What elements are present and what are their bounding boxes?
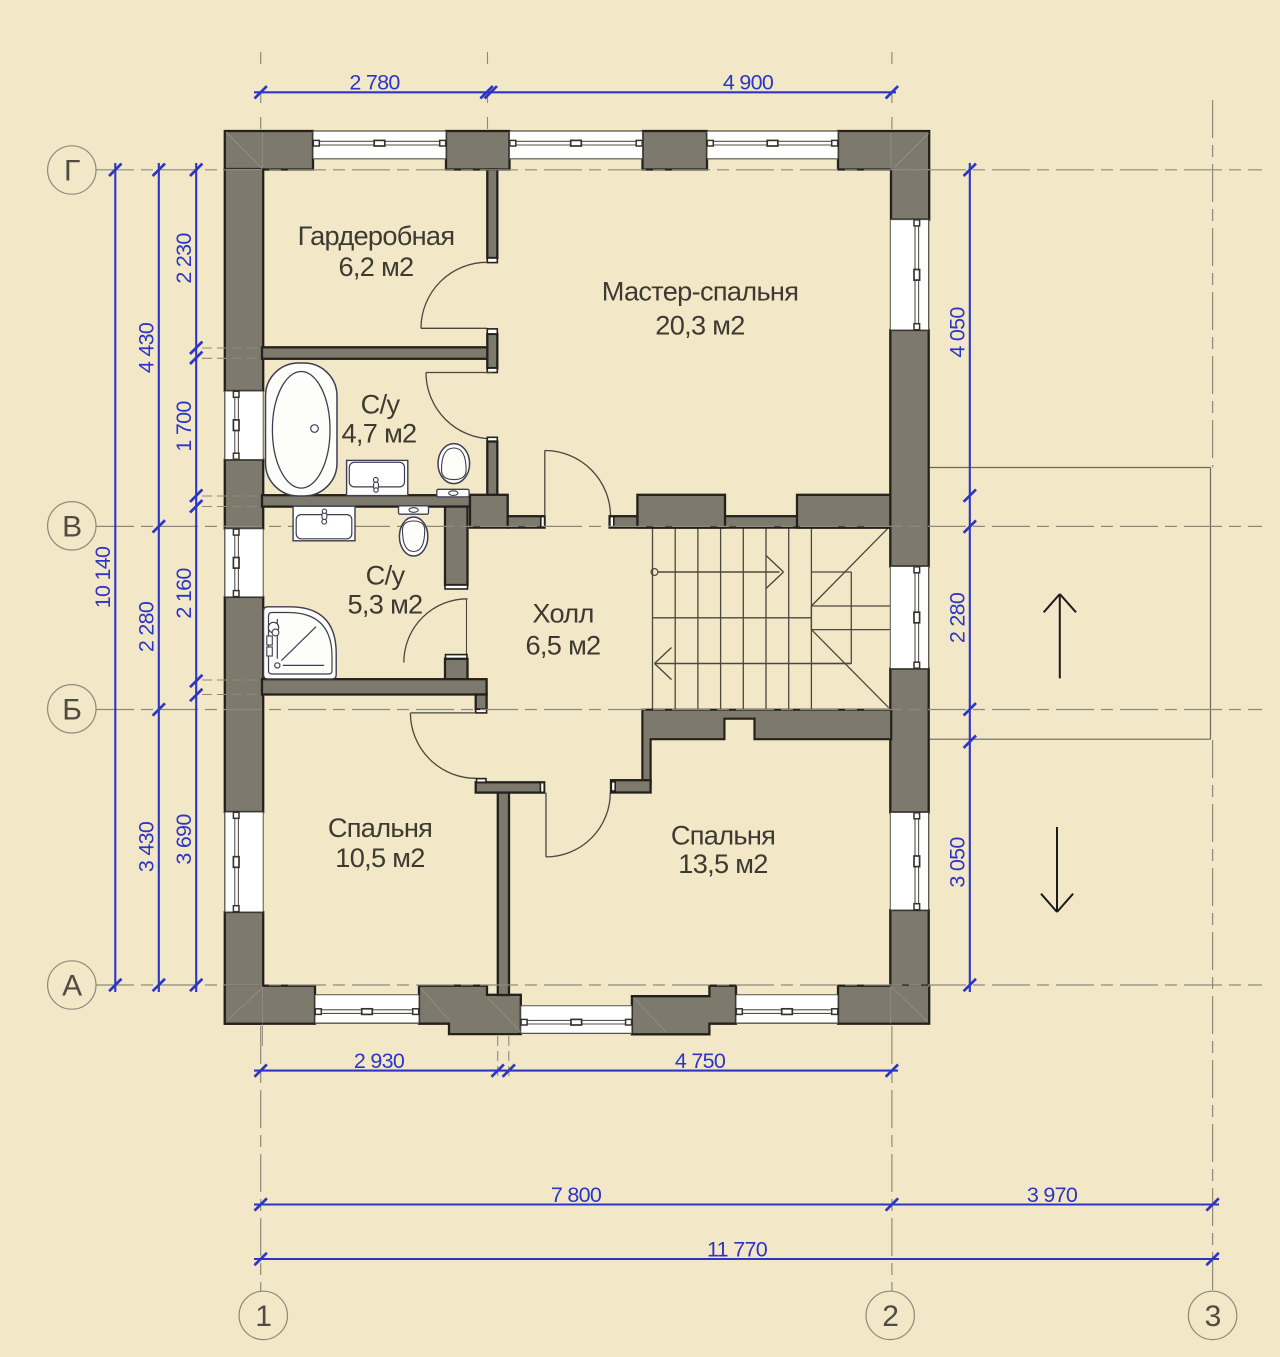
svg-text:С/у: С/у <box>361 389 401 420</box>
svg-text:Г: Г <box>64 155 80 188</box>
svg-text:В: В <box>62 510 81 543</box>
svg-text:2: 2 <box>882 1300 898 1333</box>
svg-text:20,3 м2: 20,3 м2 <box>655 310 744 341</box>
svg-text:С/у: С/у <box>366 560 406 591</box>
svg-text:2 160: 2 160 <box>172 568 196 619</box>
svg-text:4 050: 4 050 <box>946 307 970 358</box>
svg-text:6,2 м2: 6,2 м2 <box>339 251 414 282</box>
svg-text:А: А <box>62 970 82 1003</box>
svg-text:2 930: 2 930 <box>354 1049 405 1073</box>
svg-text:4 900: 4 900 <box>723 71 774 95</box>
svg-text:10 140: 10 140 <box>91 546 115 608</box>
svg-text:Б: Б <box>62 693 81 726</box>
svg-text:1: 1 <box>255 1300 271 1333</box>
svg-text:Гардеробная: Гардеробная <box>298 220 455 251</box>
svg-text:10,5 м2: 10,5 м2 <box>335 842 424 873</box>
svg-text:2 280: 2 280 <box>946 592 970 643</box>
svg-text:5,3 м2: 5,3 м2 <box>348 589 423 620</box>
svg-text:13,5 м2: 13,5 м2 <box>678 848 767 879</box>
svg-text:2 780: 2 780 <box>349 71 400 95</box>
svg-text:3: 3 <box>1205 1300 1221 1333</box>
svg-text:4 750: 4 750 <box>675 1049 726 1073</box>
svg-text:2 280: 2 280 <box>135 601 159 652</box>
svg-text:1 700: 1 700 <box>172 401 196 452</box>
svg-text:2 230: 2 230 <box>172 233 196 284</box>
svg-text:11 770: 11 770 <box>707 1237 768 1261</box>
svg-text:Спальня: Спальня <box>671 820 775 851</box>
svg-text:3 430: 3 430 <box>135 821 159 872</box>
svg-text:3 690: 3 690 <box>172 814 196 865</box>
svg-text:3 050: 3 050 <box>946 837 970 888</box>
svg-text:Спальня: Спальня <box>328 812 432 843</box>
svg-text:7 800: 7 800 <box>551 1183 602 1207</box>
svg-text:Мастер-спальня: Мастер-спальня <box>602 276 799 307</box>
svg-text:6,5 м2: 6,5 м2 <box>526 630 601 661</box>
svg-text:4,7 м2: 4,7 м2 <box>342 418 417 449</box>
svg-text:3 970: 3 970 <box>1027 1183 1078 1207</box>
svg-text:Холл: Холл <box>532 598 593 629</box>
svg-text:4 430: 4 430 <box>135 322 159 373</box>
